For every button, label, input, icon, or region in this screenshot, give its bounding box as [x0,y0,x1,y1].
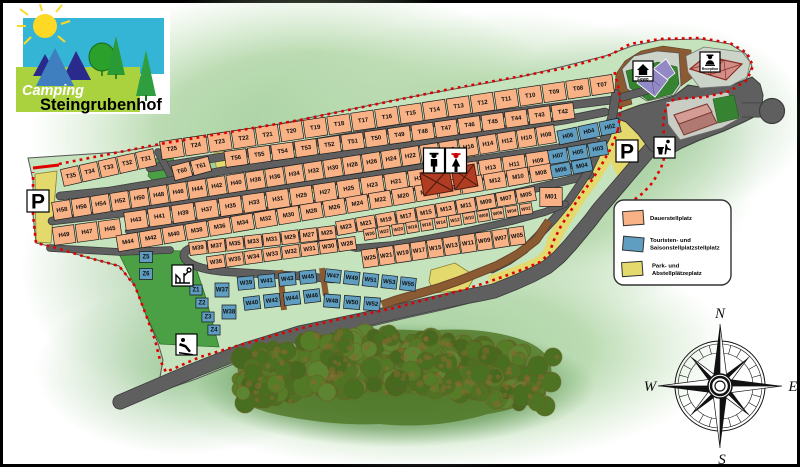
svg-text:W38: W38 [223,310,236,316]
svg-text:W: W [644,379,658,395]
svg-text:Steingrubenhof: Steingrubenhof [40,96,162,114]
svg-text:Park- und: Park- und [652,264,680,270]
svg-text:E: E [787,379,797,395]
svg-text:Z2: Z2 [198,301,206,307]
svg-text:Z6: Z6 [142,272,150,278]
svg-text:Z5: Z5 [142,255,150,261]
svg-text:Abstellplätzeplatz: Abstellplätzeplatz [652,271,702,277]
svg-text:Dauerstellplatz: Dauerstellplatz [650,216,692,222]
svg-text:P: P [620,141,634,164]
svg-text:N: N [714,306,726,322]
svg-text:W50: W50 [346,300,359,307]
svg-text:S: S [718,452,726,467]
svg-text:P: P [31,191,45,214]
svg-text:Reception: Reception [702,67,718,71]
svg-text:Z4: Z4 [210,328,218,334]
svg-text:Z3: Z3 [204,315,212,321]
svg-text:M01: M01 [545,194,558,201]
svg-text:Saisonstellplatzstellplatz: Saisonstellplatzstellplatz [650,246,720,252]
svg-text:W48: W48 [326,298,339,305]
svg-text:Touristen- und: Touristen- und [650,238,691,244]
svg-text:W39: W39 [240,280,254,287]
svg-text:W52: W52 [366,301,379,308]
svg-text:Z1: Z1 [192,288,200,294]
svg-text:W43: W43 [281,276,295,283]
svg-text:W45: W45 [302,274,316,281]
svg-text:W37: W37 [216,288,229,294]
svg-text:Fewo: Fewo [637,77,649,82]
svg-text:W41: W41 [260,278,274,285]
